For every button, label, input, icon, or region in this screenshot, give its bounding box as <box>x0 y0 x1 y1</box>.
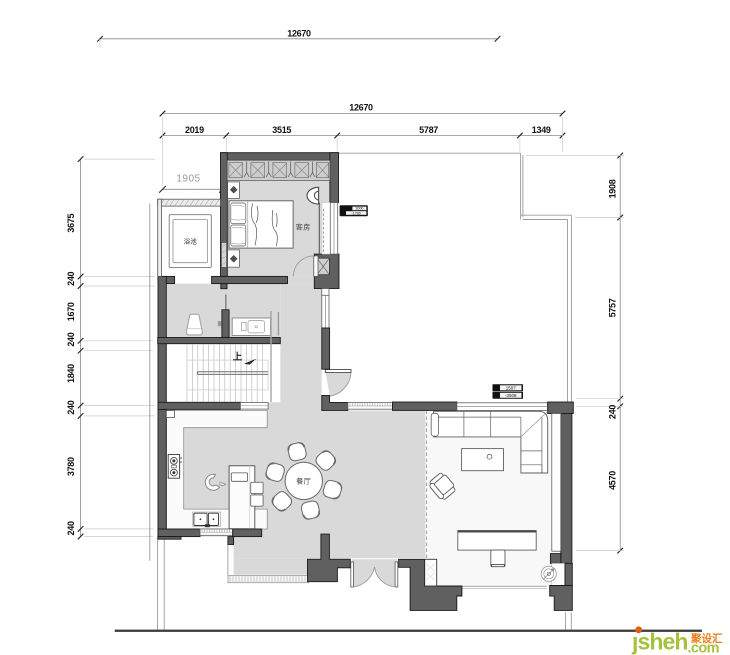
svg-text:1840: 1840 <box>66 364 76 383</box>
svg-text:12670: 12670 <box>349 103 373 113</box>
svg-text:1908: 1908 <box>608 179 618 198</box>
svg-text:5787: 5787 <box>419 125 438 135</box>
svg-text:1507: 1507 <box>506 385 517 390</box>
svg-text:-3508: -3508 <box>505 393 517 398</box>
svg-text:3515: 3515 <box>272 125 291 135</box>
svg-text:240: 240 <box>608 405 618 419</box>
svg-text:上: 上 <box>233 351 243 363</box>
svg-text:12670: 12670 <box>287 29 311 39</box>
svg-text:ȷsheh: ȷsheh <box>631 629 688 655</box>
svg-text:-1780: -1780 <box>352 211 361 215</box>
svg-text:240: 240 <box>66 400 76 414</box>
svg-text:浴池: 浴池 <box>184 237 198 246</box>
svg-text:.com: .com <box>688 641 719 655</box>
svg-text:1905: 1905 <box>176 174 200 185</box>
svg-text:3675: 3675 <box>66 213 76 232</box>
svg-text:240: 240 <box>66 332 76 346</box>
svg-text:餐厅: 餐厅 <box>296 477 311 486</box>
svg-text:4570: 4570 <box>608 471 618 490</box>
svg-text:1670: 1670 <box>66 302 76 321</box>
svg-text:3780: 3780 <box>66 457 76 476</box>
svg-text:1349: 1349 <box>532 125 551 135</box>
svg-text:3000: 3000 <box>355 207 363 211</box>
svg-text:5757: 5757 <box>608 298 618 317</box>
svg-text:240: 240 <box>66 271 76 285</box>
svg-text:2019: 2019 <box>185 125 204 135</box>
svg-text:240: 240 <box>66 521 76 535</box>
svg-text:客房: 客房 <box>296 223 311 232</box>
